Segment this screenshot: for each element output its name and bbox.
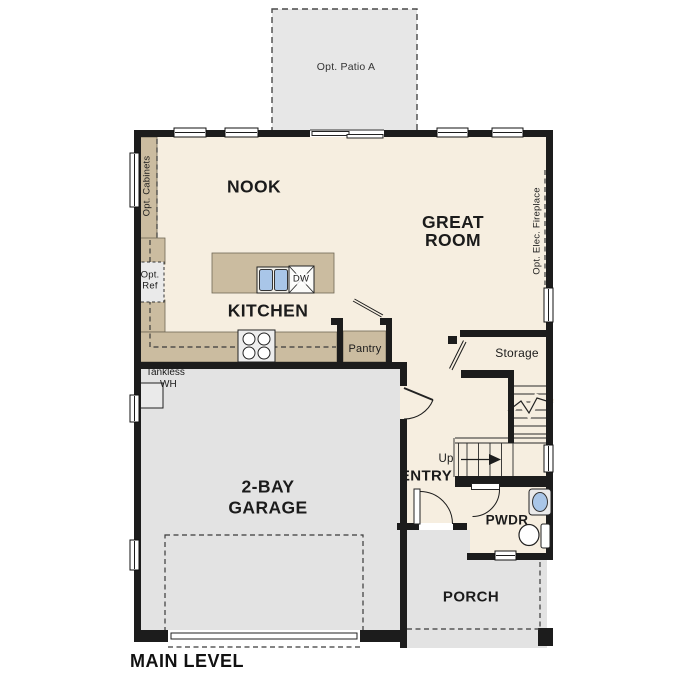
- room-label-garage: 2-BAY GARAGE: [228, 477, 307, 518]
- opt-cabinets-label: Opt. Cabinets: [142, 156, 153, 217]
- garage-overhead-door-icon: [168, 630, 360, 647]
- island-sink-icon: [257, 267, 289, 293]
- vanity-sink-icon: [529, 489, 551, 515]
- porch-post: [538, 628, 553, 646]
- room-label-powder: PWDR: [486, 513, 529, 528]
- room-label-nook: NOOK: [227, 177, 281, 198]
- window-icon: [130, 395, 139, 422]
- garage-line2: GARAGE: [228, 497, 307, 518]
- window-icon: [130, 540, 139, 570]
- plan-title: MAIN LEVEL: [130, 651, 244, 672]
- garage-line1: 2-BAY: [228, 477, 307, 498]
- window-icon: [492, 128, 523, 137]
- sliding-door-icon: [310, 129, 384, 138]
- window-icon: [225, 128, 258, 137]
- opt-patio-label: Opt. Patio A: [317, 61, 375, 73]
- tankless-line1: Tankless: [146, 367, 185, 379]
- window-icon: [174, 128, 206, 137]
- tankless-line2: WH: [146, 379, 185, 391]
- floor-areas: [137, 9, 550, 648]
- floor-plan: Opt. Patio A NOOK GREAT ROOM KITCHEN 2-B…: [0, 0, 687, 687]
- room-label-kitchen: KITCHEN: [228, 301, 309, 322]
- toilet-icon: [519, 524, 550, 548]
- great-room-line1: GREAT: [422, 213, 484, 231]
- room-label-entry: ENTRY: [400, 468, 452, 485]
- window-icon: [130, 153, 139, 207]
- tankless-wh-label: Tankless WH: [146, 367, 185, 391]
- room-label-great-room: GREAT ROOM: [422, 213, 484, 249]
- room-label-storage: Storage: [495, 346, 538, 360]
- opt-fireplace-label: Opt. Elec. Fireplace: [532, 187, 543, 274]
- window-icon: [544, 288, 553, 322]
- dishwasher-label: DW: [292, 274, 310, 285]
- stove-icon: [238, 330, 275, 362]
- window-icon: [437, 128, 468, 137]
- opt-ref-label: Opt. Ref: [141, 271, 160, 292]
- window-icon: [495, 551, 516, 560]
- room-label-porch: PORCH: [443, 589, 499, 606]
- counter-upper: [140, 238, 165, 264]
- stairs-up-label: Up: [438, 453, 453, 465]
- floor-plan-drawing: [0, 0, 687, 687]
- window-icon: [544, 445, 553, 472]
- great-room-line2: ROOM: [422, 231, 484, 249]
- room-label-pantry: Pantry: [349, 343, 382, 355]
- opt-ref-line1: Opt.: [141, 271, 160, 282]
- counter-lower: [140, 300, 165, 332]
- opt-ref-line2: Ref: [141, 281, 160, 292]
